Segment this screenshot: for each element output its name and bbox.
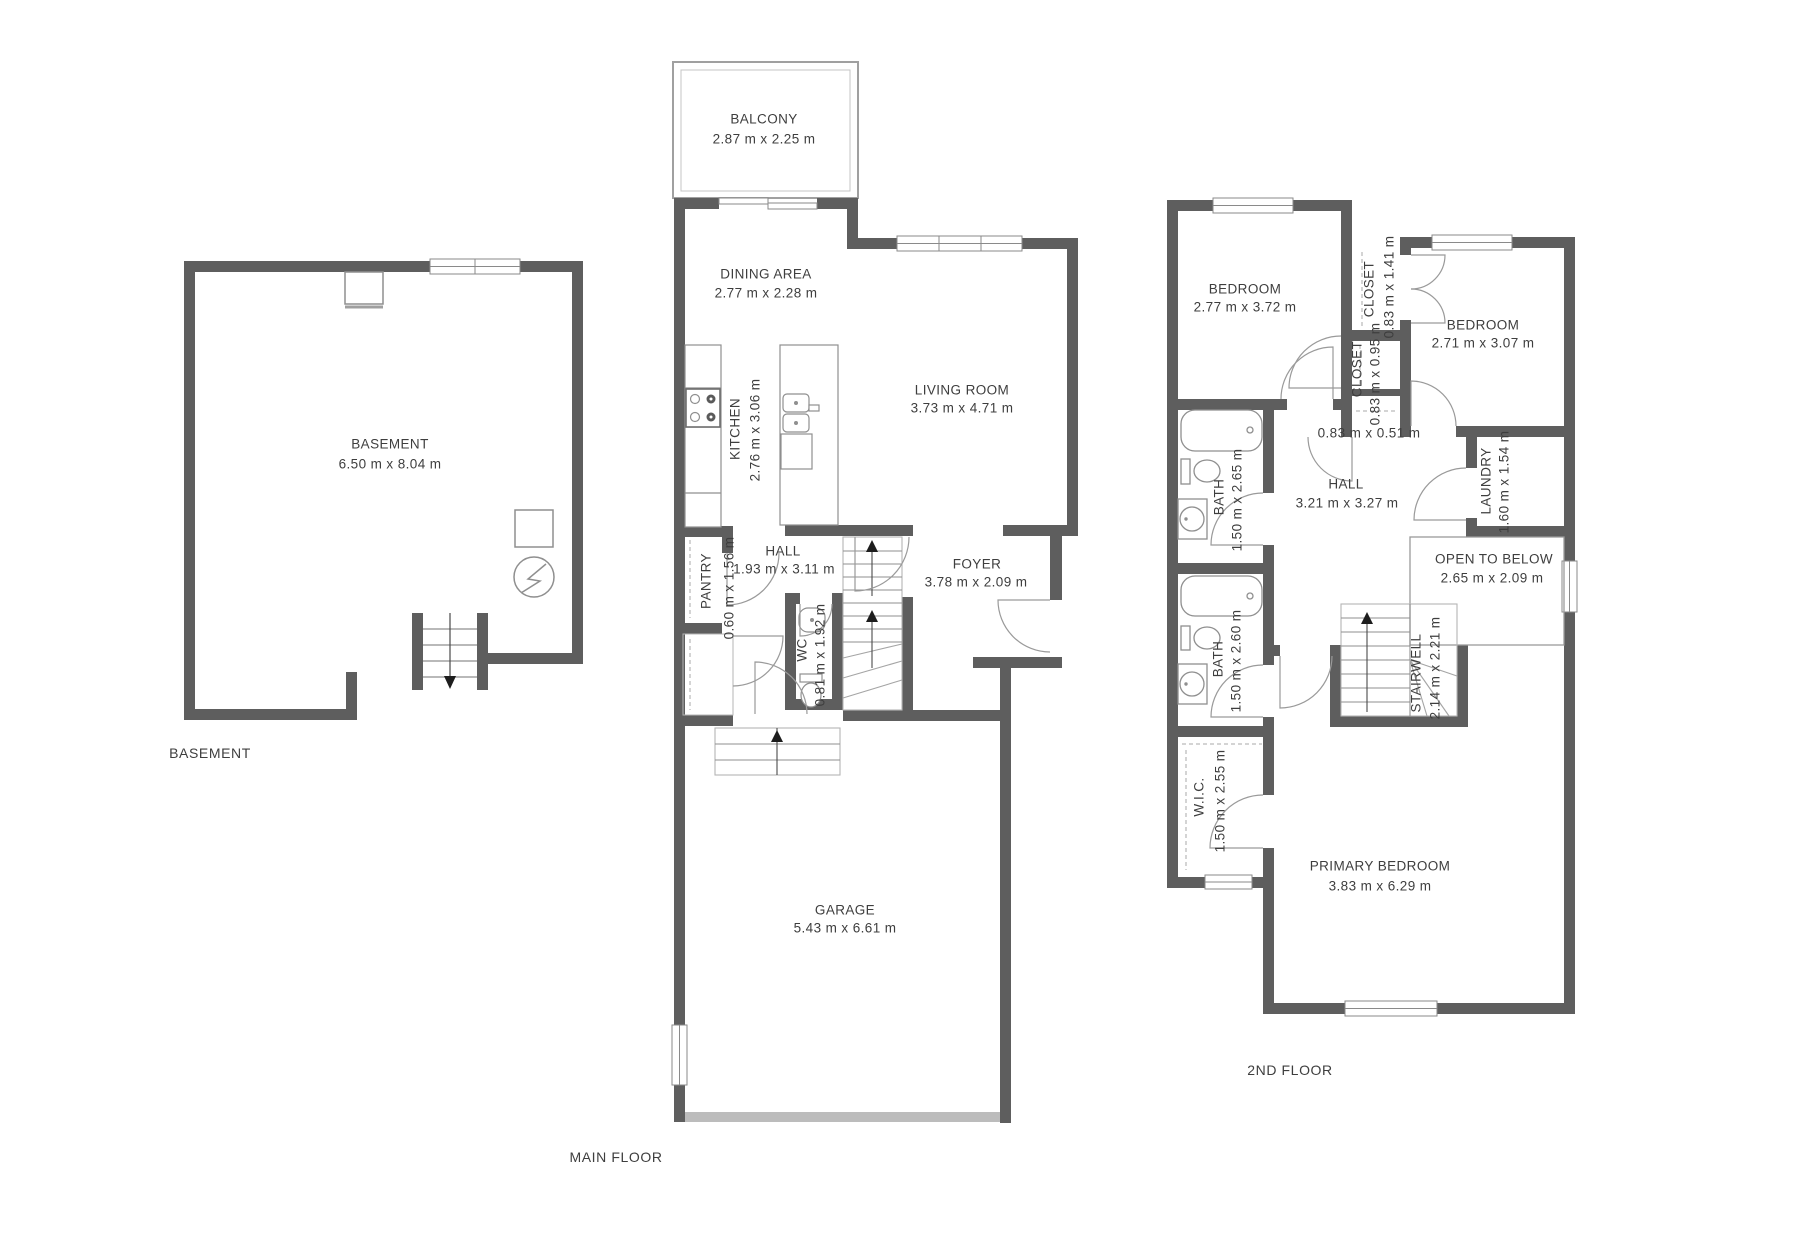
room-dims: 1.60 m x 1.54 m xyxy=(1497,431,1511,534)
basement-window xyxy=(430,259,520,274)
garage-entry-steps xyxy=(715,728,840,775)
room-dims: 1.50 m x 2.60 m xyxy=(1229,610,1243,713)
electrical-panel-icon xyxy=(515,510,553,547)
room-label: CLOSET xyxy=(1362,261,1376,317)
room-label: LAUNDRY xyxy=(1479,447,1493,514)
floor-label-second: 2ND FLOOR xyxy=(1247,1063,1333,1077)
room-dims: 2.14 m x 2.21 m xyxy=(1428,617,1442,720)
room-label: PANTRY xyxy=(699,553,713,609)
room-label: DINING AREA xyxy=(720,267,811,281)
floor-label-main: MAIN FLOOR xyxy=(569,1150,662,1164)
room-dims: 2.77 m x 2.28 m xyxy=(715,286,818,300)
room-label: HALL xyxy=(1328,477,1363,491)
room-dims: 2.76 m x 3.06 m xyxy=(748,379,762,482)
kitchen-counter xyxy=(685,345,721,527)
garage-window xyxy=(672,1025,687,1085)
room-label: HALL xyxy=(765,544,800,558)
room-dims: 6.50 m x 8.04 m xyxy=(339,457,442,471)
second-floor-doors xyxy=(1210,255,1466,848)
floorplan-page: BASEMENT 6.50 m x 8.04 m BASEMENT BALCON… xyxy=(0,0,1794,1240)
room-dims: 5.43 m x 6.61 m xyxy=(794,921,897,935)
basement-support-box xyxy=(345,272,383,307)
room-label: KITCHEN xyxy=(728,398,742,460)
room-dims: 1.50 m x 2.55 m xyxy=(1213,750,1227,853)
room-dims: 0.83 m x 0.95 m xyxy=(1368,323,1382,426)
kitchen-island xyxy=(780,345,838,525)
room-dims: 3.78 m x 2.09 m xyxy=(925,575,1028,589)
room-dims: 3.21 m x 3.27 m xyxy=(1296,496,1399,510)
room-label: CLOSET xyxy=(1350,341,1364,397)
room-dims: 2.87 m x 2.25 m xyxy=(713,132,816,146)
room-label: LIVING ROOM xyxy=(915,383,1009,397)
main-floor-walls xyxy=(674,198,1078,1123)
room-label: BEDROOM xyxy=(1447,318,1520,332)
electrical-meter-icon xyxy=(514,557,554,597)
stove-icon xyxy=(686,389,720,427)
basement-stairs-down xyxy=(423,613,477,689)
room-label: OPEN TO BELOW xyxy=(1435,552,1553,566)
room-label: FOYER xyxy=(953,557,1002,571)
floorplan-drawing xyxy=(0,0,1794,1240)
room-dims: 2.77 m x 3.72 m xyxy=(1194,300,1297,314)
room-dims: 0.83 m x 0.51 m xyxy=(1318,426,1421,440)
room-label: PRIMARY BEDROOM xyxy=(1310,859,1451,873)
room-label: BASEMENT xyxy=(351,437,428,451)
garage-door xyxy=(685,1112,1000,1122)
foyer-stairs-up xyxy=(843,537,902,710)
room-dims: 0.60 m x 1.56 m xyxy=(722,537,736,640)
room-label: STAIRWELL xyxy=(1409,634,1423,713)
room-dims: 0.83 m x 1.41 m xyxy=(1382,236,1396,339)
room-label: W.I.C. xyxy=(1192,777,1206,816)
room-label: WC xyxy=(795,638,809,661)
room-label: BATH xyxy=(1211,641,1225,678)
room-dims: 1.93 m x 3.11 m xyxy=(733,562,835,576)
room-dims: 2.71 m x 3.07 m xyxy=(1432,336,1535,350)
room-dims: 3.83 m x 6.29 m xyxy=(1329,879,1432,893)
room-dims: 1.50 m x 2.65 m xyxy=(1230,449,1244,552)
living-room-window xyxy=(897,236,1022,251)
room-label: GARAGE xyxy=(815,903,875,917)
room-label: BEDROOM xyxy=(1209,282,1282,296)
room-dims: 3.73 m x 4.71 m xyxy=(911,401,1014,415)
room-dims: 0.81 m x 1.92 m xyxy=(813,604,827,707)
floor-label-basement: BASEMENT xyxy=(169,746,251,760)
basement-walls xyxy=(184,261,583,720)
room-label: BALCONY xyxy=(730,112,797,126)
balcony-outline xyxy=(673,62,858,198)
room-label: BATH xyxy=(1212,479,1226,516)
balcony-sliding-door xyxy=(719,198,817,209)
room-dims: 2.65 m x 2.09 m xyxy=(1441,571,1544,585)
bath1-fixtures xyxy=(1178,410,1262,539)
